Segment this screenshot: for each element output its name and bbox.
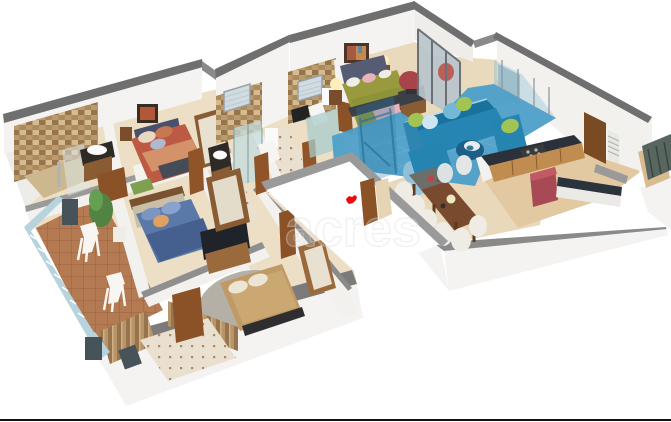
svg-text:acres: acres	[285, 200, 421, 258]
